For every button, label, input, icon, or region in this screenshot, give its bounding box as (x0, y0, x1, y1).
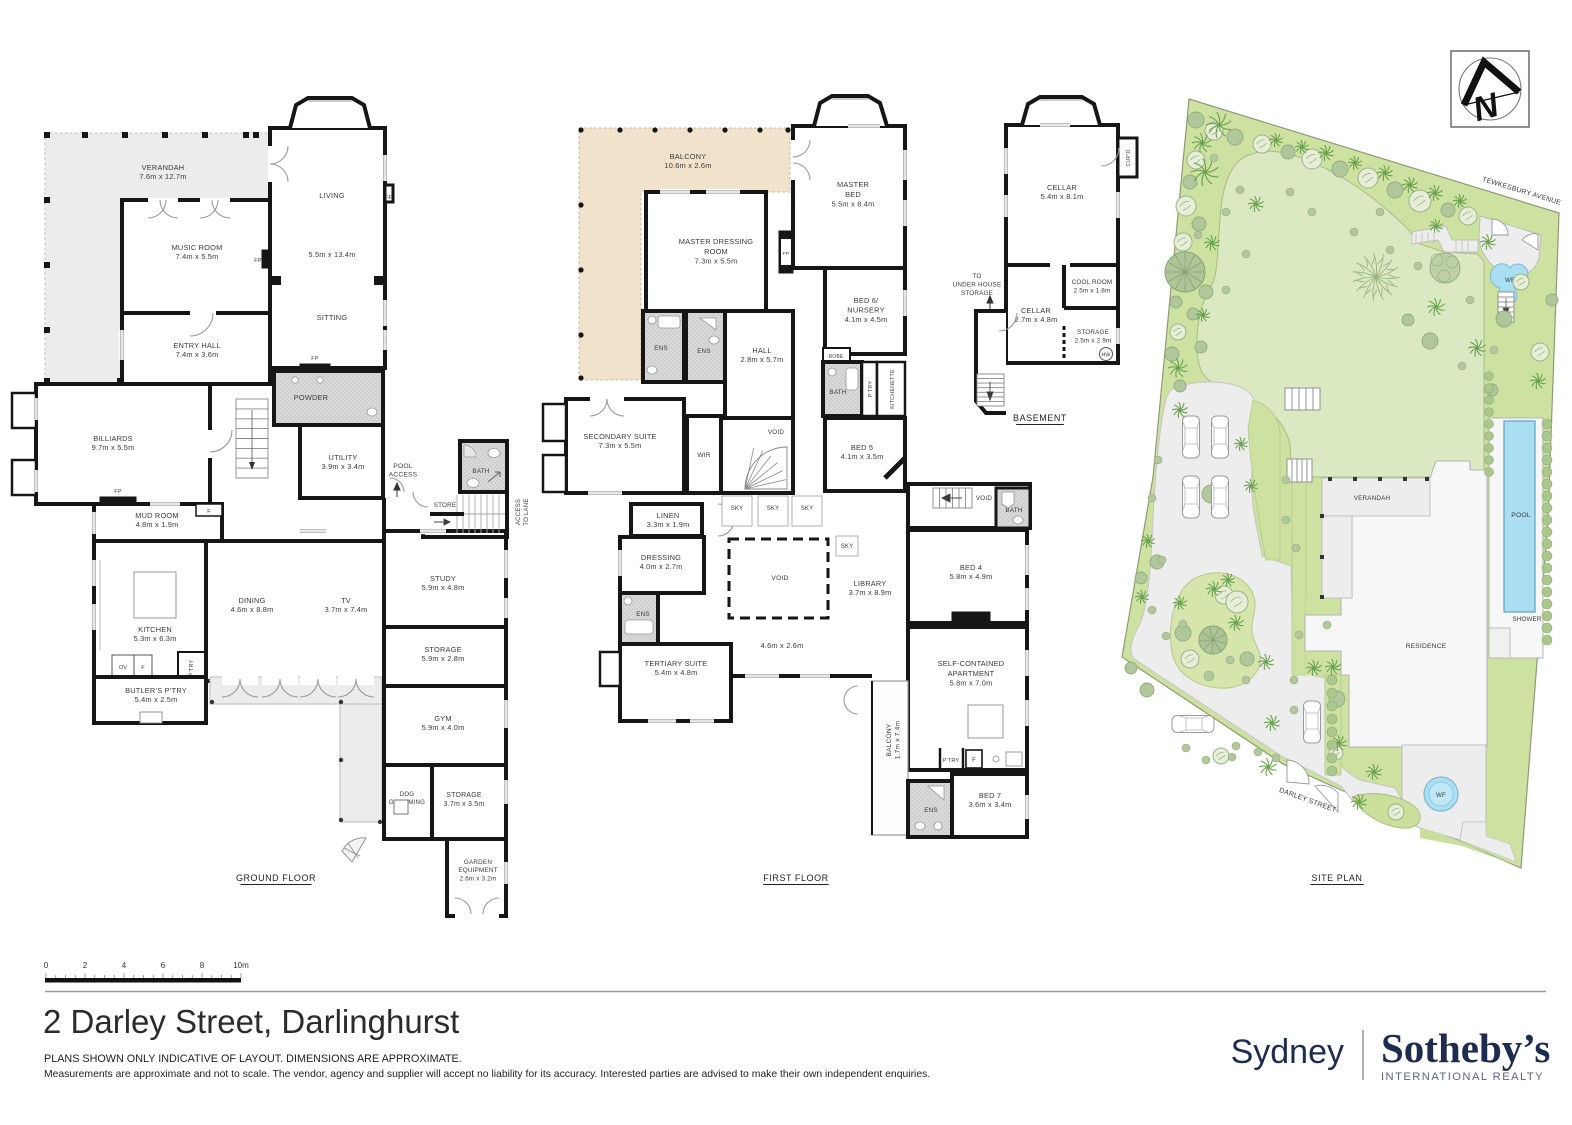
svg-text:2: 2 (83, 961, 88, 970)
svg-text:CELLAR: CELLAR (1021, 306, 1051, 315)
svg-text:ROOM: ROOM (704, 247, 728, 256)
svg-text:FP: FP (385, 195, 393, 201)
svg-text:VOID: VOID (771, 575, 788, 582)
svg-text:APARTMENT: APARTMENT (948, 669, 995, 678)
svg-text:RESIDENCE: RESIDENCE (1406, 643, 1447, 650)
svg-text:BILLIARDS: BILLIARDS (93, 434, 133, 443)
svg-text:2.5m x 2.9m: 2.5m x 2.9m (1075, 338, 1112, 345)
svg-text:POWDER: POWDER (294, 393, 328, 402)
svg-text:3.9m x 3.4m: 3.9m x 3.4m (322, 462, 365, 471)
svg-text:VOID: VOID (768, 429, 784, 436)
svg-text:FP: FP (783, 251, 790, 257)
svg-text:4.8m x 1.9m: 4.8m x 1.9m (136, 520, 179, 529)
svg-text:4.0m x 2.7m: 4.0m x 2.7m (640, 562, 683, 571)
svg-text:ENS: ENS (924, 807, 938, 814)
svg-text:UNDER HOUSE: UNDER HOUSE (953, 281, 1002, 288)
svg-text:F: F (972, 758, 976, 764)
svg-text:0: 0 (44, 961, 49, 970)
svg-text:5.4m x 8.1m: 5.4m x 8.1m (1041, 192, 1084, 201)
svg-text:BUTLER’S P’TRY: BUTLER’S P’TRY (125, 686, 187, 695)
svg-text:3.7m x 8.9m: 3.7m x 8.9m (849, 588, 892, 597)
svg-text:10.6m x 2.6m: 10.6m x 2.6m (664, 161, 711, 170)
svg-text:DRESSING: DRESSING (641, 553, 681, 562)
svg-text:GROUND FLOOR: GROUND FLOOR (236, 873, 316, 883)
svg-text:FP: FP (311, 356, 319, 362)
svg-text:EQUIPMENT: EQUIPMENT (458, 867, 497, 874)
svg-text:7.4m x 3.6m: 7.4m x 3.6m (176, 350, 219, 359)
svg-text:ENS: ENS (654, 345, 668, 352)
svg-text:ACCESS: ACCESS (515, 499, 522, 525)
svg-text:SKY: SKY (767, 506, 780, 512)
svg-text:DINING: DINING (238, 596, 265, 605)
svg-text:F: F (207, 509, 211, 515)
svg-text:FP: FP (114, 489, 122, 495)
svg-text:5.3m x 6.3m: 5.3m x 6.3m (134, 634, 177, 643)
svg-text:LINEN: LINEN (657, 511, 680, 520)
svg-text:GYM: GYM (434, 714, 451, 723)
svg-text:CUP’D: CUP’D (1126, 150, 1132, 167)
svg-text:STORAGE: STORAGE (961, 290, 993, 297)
svg-text:COOL ROOM: COOL ROOM (1072, 279, 1113, 286)
svg-text:STORAGE: STORAGE (1077, 329, 1109, 336)
svg-text:9.7m x 5.5m: 9.7m x 5.5m (92, 443, 135, 452)
svg-text:SITE PLAN: SITE PLAN (1312, 873, 1363, 883)
svg-text:KITCHEN: KITCHEN (138, 625, 172, 634)
svg-text:MASTER: MASTER (837, 180, 869, 189)
svg-text:WF: WF (1436, 792, 1446, 799)
svg-text:2 Darley Street, Darlinghurst: 2 Darley Street, Darlinghurst (43, 1003, 459, 1040)
svg-text:Sydney: Sydney (1231, 1033, 1344, 1071)
svg-text:VOID: VOID (976, 495, 992, 502)
svg-text:INTERNATIONAL REALTY: INTERNATIONAL REALTY (1381, 1071, 1544, 1083)
svg-text:4.6m x 2.6m: 4.6m x 2.6m (761, 641, 804, 650)
svg-text:WIR: WIR (697, 452, 711, 459)
svg-text:SECONDARY SUITE: SECONDARY SUITE (583, 432, 656, 441)
svg-text:BATH: BATH (829, 389, 846, 396)
svg-text:BED 5: BED 5 (851, 443, 873, 452)
svg-text:LIVING: LIVING (319, 191, 344, 200)
svg-text:4.6m x 8.8m: 4.6m x 8.8m (231, 605, 274, 614)
svg-text:4: 4 (122, 961, 127, 970)
svg-text:ROBE: ROBE (829, 354, 844, 360)
svg-text:5.5m x 13.4m: 5.5m x 13.4m (308, 250, 355, 259)
svg-text:LIBRARY: LIBRARY (854, 579, 887, 588)
svg-text:GARDEN: GARDEN (464, 859, 492, 866)
svg-text:BALCONY: BALCONY (886, 723, 893, 756)
svg-text:STORAGE: STORAGE (446, 792, 482, 799)
svg-text:SKY: SKY (841, 544, 854, 550)
svg-text:DOG: DOG (400, 791, 415, 798)
svg-text:TO LANE: TO LANE (523, 498, 530, 525)
svg-text:SKY: SKY (801, 506, 814, 512)
svg-text:5.4m x 2.5m: 5.4m x 2.5m (135, 695, 178, 704)
svg-text:2.6m x 3.2m: 2.6m x 3.2m (460, 875, 497, 882)
svg-text:STORE: STORE (434, 502, 457, 509)
svg-text:BED: BED (845, 190, 861, 199)
svg-text:1.7m x 7.4m: 1.7m x 7.4m (895, 720, 902, 759)
svg-text:7.3m x 5.5m: 7.3m x 5.5m (695, 257, 738, 266)
svg-text:POOL: POOL (393, 463, 412, 470)
svg-text:5.4m x 4.8m: 5.4m x 4.8m (655, 668, 698, 677)
svg-text:KITCHENETTE: KITCHENETTE (890, 369, 896, 409)
svg-text:8: 8 (200, 961, 205, 970)
svg-text:4.1m x 4.5m: 4.1m x 4.5m (845, 315, 888, 324)
svg-text:5.9m x 2.8m: 5.9m x 2.8m (422, 654, 465, 663)
svg-text:MUSIC ROOM: MUSIC ROOM (172, 243, 223, 252)
svg-text:5.9m x 4.8m: 5.9m x 4.8m (422, 583, 465, 592)
svg-text:BED 7: BED 7 (979, 791, 1001, 800)
svg-text:4.1m x 3.5m: 4.1m x 3.5m (841, 452, 884, 461)
svg-text:BALCONY: BALCONY (670, 152, 707, 161)
svg-text:ENTRY HALL: ENTRY HALL (173, 341, 220, 350)
svg-text:Sotheby’s: Sotheby’s (1381, 1025, 1550, 1071)
svg-text:MUD ROOM: MUD ROOM (135, 511, 178, 520)
svg-text:TV: TV (341, 596, 351, 605)
svg-text:HALL: HALL (752, 346, 771, 355)
svg-text:BATH: BATH (472, 468, 489, 475)
svg-text:UTILITY: UTILITY (329, 453, 358, 462)
svg-text:VERANDAH: VERANDAH (142, 163, 185, 172)
svg-text:TERTIARY SUITE: TERTIARY SUITE (645, 659, 708, 668)
svg-text:Measurements are approximate a: Measurements are approximate and not to … (44, 1069, 930, 1080)
svg-text:ENS: ENS (636, 611, 650, 618)
svg-text:P’TRY: P’TRY (868, 381, 874, 398)
svg-text:F: F (141, 665, 145, 671)
svg-text:7.4m x 5.5m: 7.4m x 5.5m (176, 252, 219, 261)
svg-text:CELLAR: CELLAR (1047, 183, 1077, 192)
svg-text:P’TRY: P’TRY (189, 659, 195, 676)
svg-text:VERANDAH: VERANDAH (1354, 495, 1391, 502)
svg-text:POOL: POOL (1511, 512, 1530, 519)
svg-text:2.7m x 4.8m: 2.7m x 4.8m (1015, 315, 1058, 324)
svg-text:MASTER DRESSING: MASTER DRESSING (679, 237, 754, 246)
svg-text:STUDY: STUDY (430, 574, 456, 583)
svg-text:5.9m x 4.0m: 5.9m x 4.0m (422, 723, 465, 732)
svg-text:FIRST FLOOR: FIRST FLOOR (763, 873, 828, 883)
svg-text:ENS: ENS (697, 348, 711, 355)
svg-text:7.3m x 5.5m: 7.3m x 5.5m (599, 441, 642, 450)
svg-text:3.3m x 1.9m: 3.3m x 1.9m (647, 520, 690, 529)
svg-text:SELF-CONTAINED: SELF-CONTAINED (938, 659, 1005, 668)
svg-text:3.7m x 3.5m: 3.7m x 3.5m (444, 801, 485, 808)
svg-text:2.8m x 5.7m: 2.8m x 5.7m (741, 355, 784, 364)
svg-text:2.5m x 1.8m: 2.5m x 1.8m (1074, 288, 1111, 295)
svg-text:PLANS SHOWN ONLY INDICATIVE OF: PLANS SHOWN ONLY INDICATIVE OF LAYOUT. D… (44, 1053, 462, 1065)
svg-text:NURSERY: NURSERY (847, 305, 884, 314)
svg-text:BED 4: BED 4 (960, 563, 982, 572)
svg-text:5.8m x 4.9m: 5.8m x 4.9m (950, 572, 993, 581)
svg-text:BASEMENT: BASEMENT (1013, 413, 1067, 423)
svg-text:SKY: SKY (731, 506, 744, 512)
svg-text:5.5m x 8.4m: 5.5m x 8.4m (832, 200, 875, 209)
svg-text:10m: 10m (233, 961, 249, 970)
svg-text:TO: TO (972, 273, 981, 280)
svg-text:5.8m x 7.0m: 5.8m x 7.0m (950, 679, 993, 688)
svg-text:3.7m x 7.4m: 3.7m x 7.4m (325, 605, 368, 614)
svg-text:6: 6 (161, 961, 166, 970)
svg-text:P’TRY: P’TRY (943, 758, 960, 764)
svg-text:HW: HW (1101, 353, 1110, 359)
svg-text:SITTING: SITTING (317, 313, 348, 322)
svg-text:FP: FP (254, 258, 262, 264)
svg-text:7.6m x 12.7m: 7.6m x 12.7m (139, 172, 186, 181)
svg-text:OV: OV (119, 665, 127, 671)
svg-text:STORAGE: STORAGE (424, 645, 461, 654)
svg-text:SHOWER: SHOWER (1512, 616, 1541, 623)
svg-text:BED 6/: BED 6/ (854, 296, 879, 305)
svg-text:3.6m x 3.4m: 3.6m x 3.4m (969, 800, 1012, 809)
svg-text:ACCESS: ACCESS (389, 472, 418, 479)
